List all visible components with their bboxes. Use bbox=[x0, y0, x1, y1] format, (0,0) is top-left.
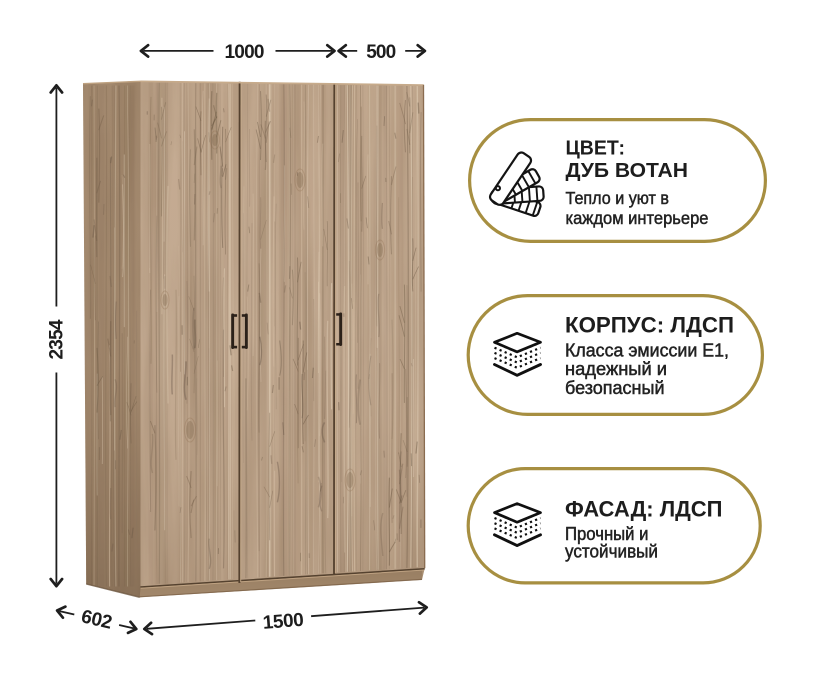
svg-text:Тепло и уют в: Тепло и уют в bbox=[566, 188, 670, 208]
svg-text:ФАСАД: ЛДСП: ФАСАД: ЛДСП bbox=[565, 497, 723, 522]
svg-text:1500: 1500 bbox=[262, 610, 304, 634]
svg-text:КОРПУС: ЛДСП: КОРПУС: ЛДСП bbox=[565, 313, 734, 338]
svg-text:каждом интерьере: каждом интерьере bbox=[566, 208, 709, 228]
svg-text:надежный и: надежный и bbox=[565, 358, 667, 379]
svg-text:ЦВЕТ:: ЦВЕТ: bbox=[566, 137, 626, 160]
svg-text:602: 602 bbox=[79, 606, 114, 633]
svg-text:2354: 2354 bbox=[47, 319, 68, 359]
svg-text:устойчивый: устойчивый bbox=[565, 541, 658, 562]
svg-text:500: 500 bbox=[366, 42, 396, 63]
svg-text:безопасный: безопасный bbox=[565, 377, 665, 398]
svg-text:1000: 1000 bbox=[225, 42, 265, 63]
svg-text:ДУБ ВОТАН: ДУБ ВОТАН bbox=[566, 159, 689, 182]
